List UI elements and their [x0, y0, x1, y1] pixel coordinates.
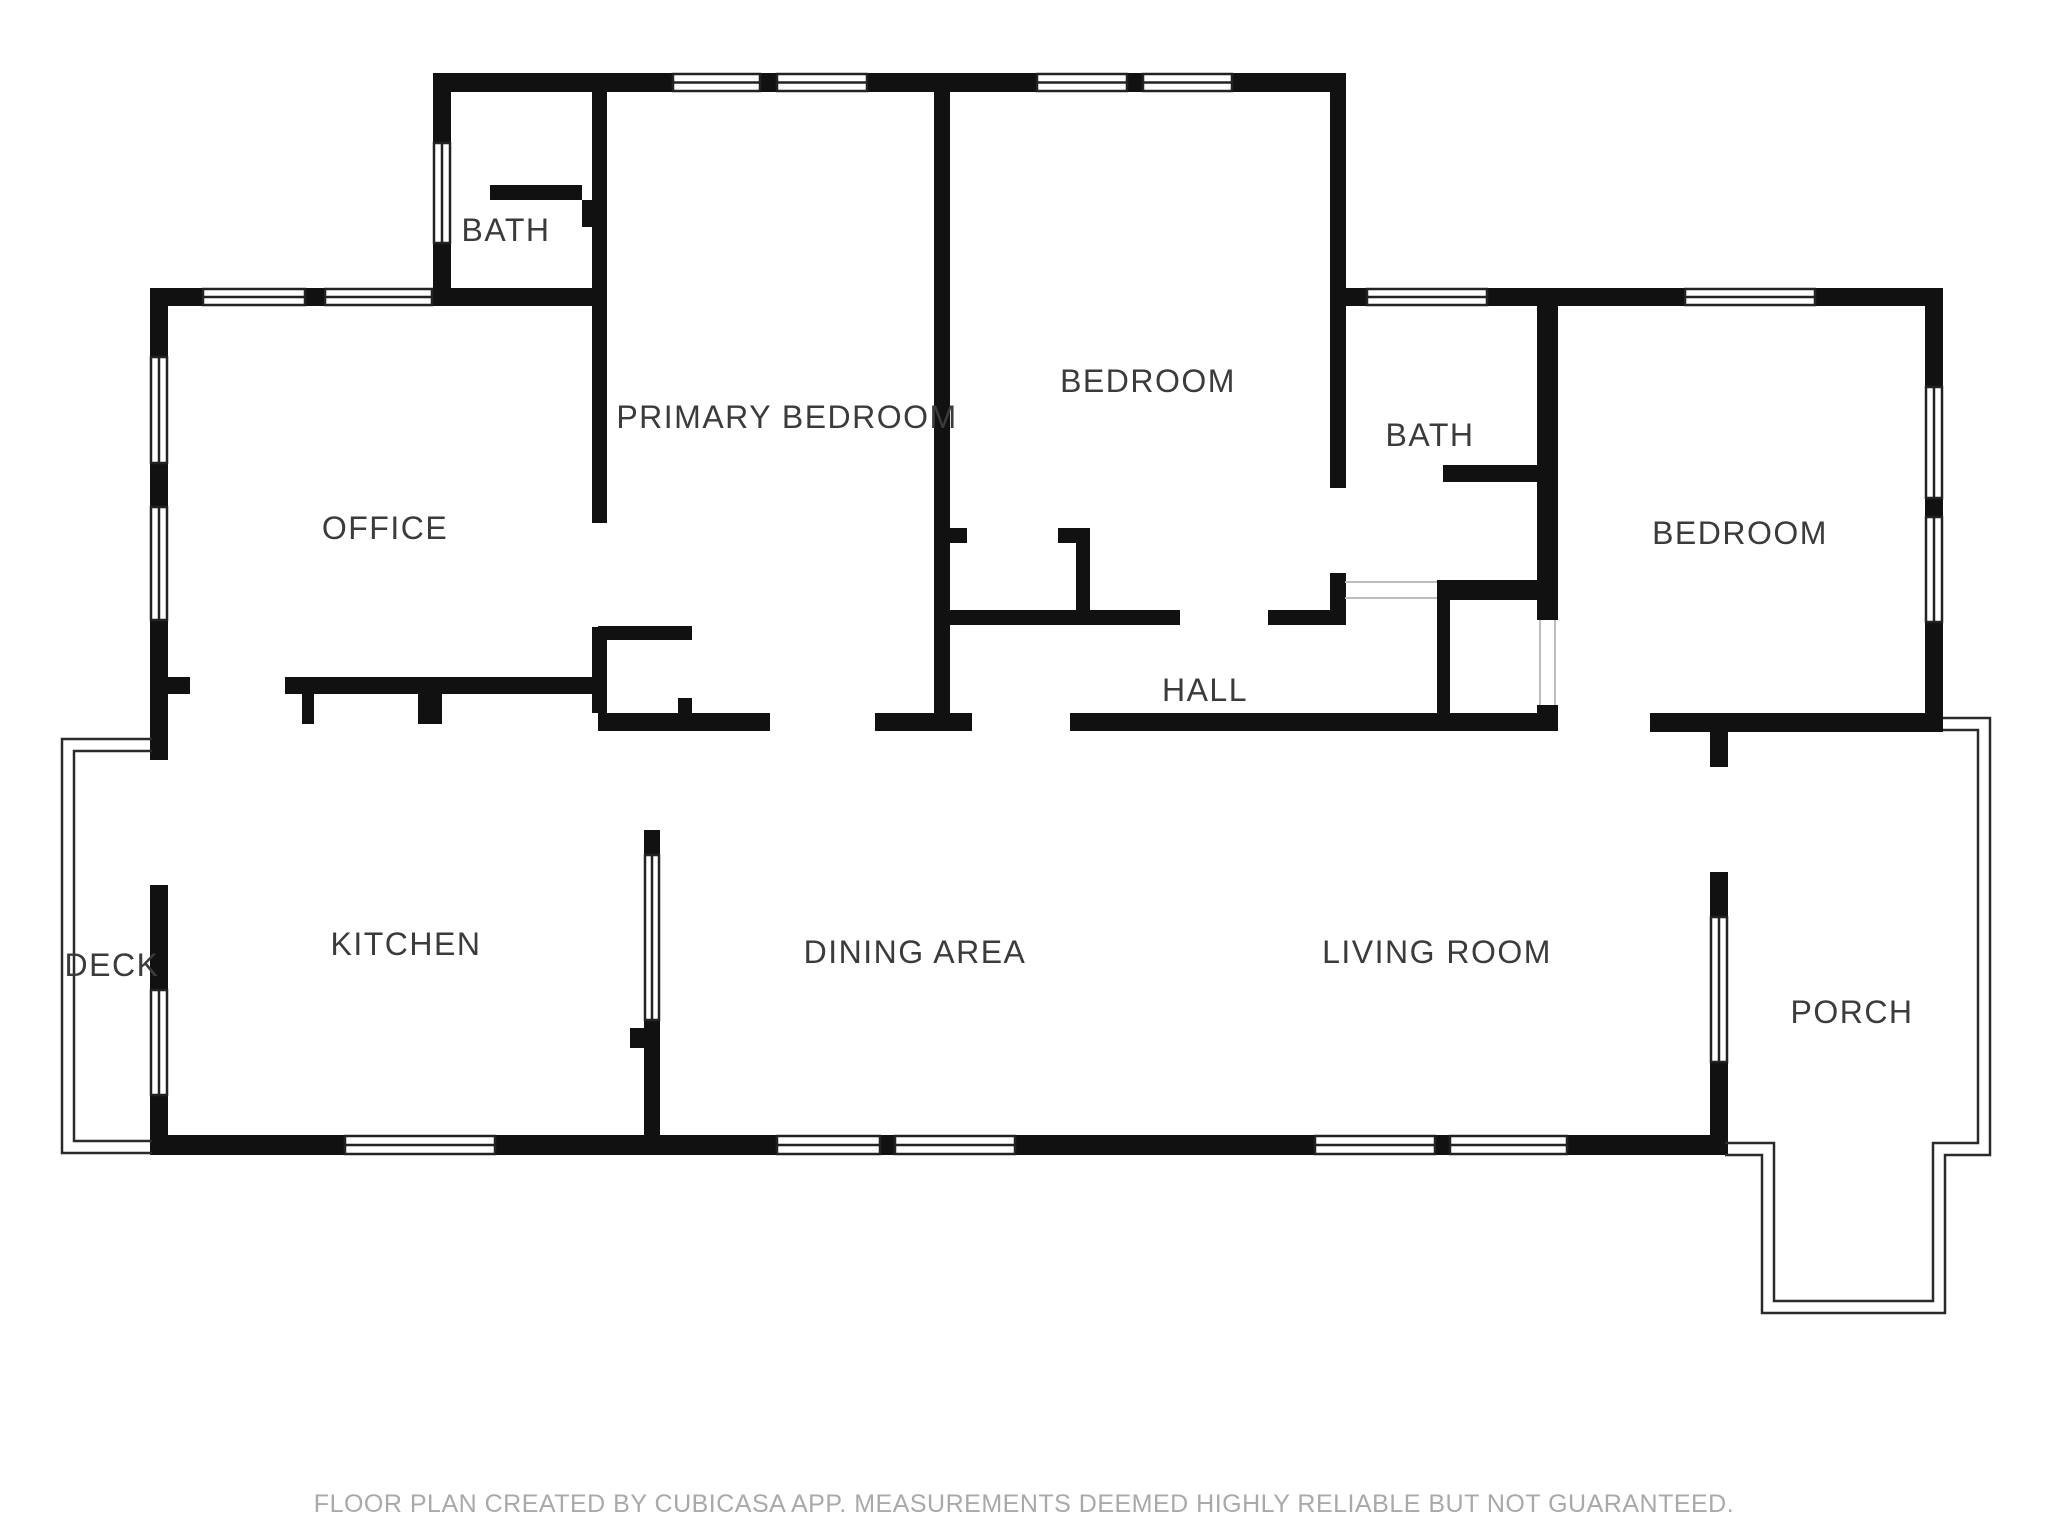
window-symbol: [1315, 1136, 1435, 1154]
floor-plan-canvas: BATH OFFICE PRIMARY BEDROOM BEDROOM BATH…: [0, 0, 2048, 1536]
door-opening: [150, 760, 168, 885]
window-symbol: [777, 74, 867, 91]
window-symbol: [325, 289, 432, 305]
wall: [418, 694, 442, 724]
room-label-bath-right: BATH: [1386, 417, 1475, 453]
window-symbol: [434, 143, 450, 243]
walls: [150, 73, 1943, 1155]
wall: [1650, 713, 1943, 732]
wall: [1437, 580, 1537, 600]
wall: [150, 677, 190, 694]
wall: [678, 698, 692, 713]
window-symbol: [777, 1136, 880, 1154]
wall: [1330, 573, 1346, 625]
deck-outline: [62, 739, 152, 1153]
wall: [1268, 610, 1330, 625]
wall: [948, 610, 1180, 625]
window-symbol: [345, 1136, 495, 1154]
floor-plan-page: { "floor_plan": { "app_footer": "FLOOR P…: [0, 0, 2048, 1536]
wall: [1070, 713, 1558, 731]
wall: [630, 1028, 644, 1048]
room-label-dining-area: DINING AREA: [804, 934, 1027, 970]
window-symbol: [1037, 74, 1127, 91]
room-label-deck: DECK: [65, 947, 160, 983]
window-symbol: [151, 357, 167, 463]
room-label-bedroom-top: BEDROOM: [1060, 363, 1236, 399]
wall: [490, 185, 582, 200]
room-label-porch: PORCH: [1790, 994, 1913, 1030]
wall: [582, 200, 600, 227]
room-label-bedroom-right: BEDROOM: [1652, 515, 1828, 551]
door-openings: [150, 582, 1555, 885]
window-symbol: [1926, 387, 1942, 498]
room-label-office: OFFICE: [322, 510, 448, 546]
room-label-bath-upper: BATH: [462, 212, 551, 248]
wall: [644, 1020, 660, 1135]
window-symbol: [151, 507, 167, 620]
window-symbol: [1926, 517, 1942, 622]
window-symbol: [151, 990, 167, 1095]
wall: [1437, 600, 1450, 713]
wall: [948, 528, 967, 543]
wall: [285, 677, 607, 694]
wall: [1710, 713, 1728, 767]
window-symbol: [673, 74, 760, 91]
wall: [1710, 872, 1728, 917]
window-symbol: [895, 1136, 1015, 1154]
wall: [644, 830, 660, 855]
window-symbol: [1685, 289, 1815, 305]
wall: [592, 92, 607, 523]
room-label-kitchen: KITCHEN: [331, 926, 482, 962]
wall: [1925, 288, 1943, 732]
window-symbol: [1367, 289, 1487, 305]
window-symbol: [1711, 917, 1727, 1062]
window-symbol: [1143, 74, 1232, 91]
wall: [875, 713, 972, 731]
room-label-hall: HALL: [1162, 672, 1248, 708]
wall: [1330, 92, 1346, 488]
footer-disclaimer: FLOOR PLAN CREATED BY CUBICASA APP. MEAS…: [314, 1490, 1734, 1518]
wall: [1537, 306, 1558, 620]
room-label-primary-bedroom: PRIMARY BEDROOM: [616, 399, 957, 435]
wall: [1710, 1062, 1728, 1155]
window-symbol: [1450, 1136, 1567, 1154]
window-symbol: [645, 855, 659, 1020]
wall: [598, 626, 692, 640]
wall: [1537, 705, 1558, 713]
wall: [598, 713, 770, 731]
room-label-living-room: LIVING ROOM: [1322, 934, 1552, 970]
window-symbol: [203, 289, 305, 305]
wall: [302, 694, 314, 724]
